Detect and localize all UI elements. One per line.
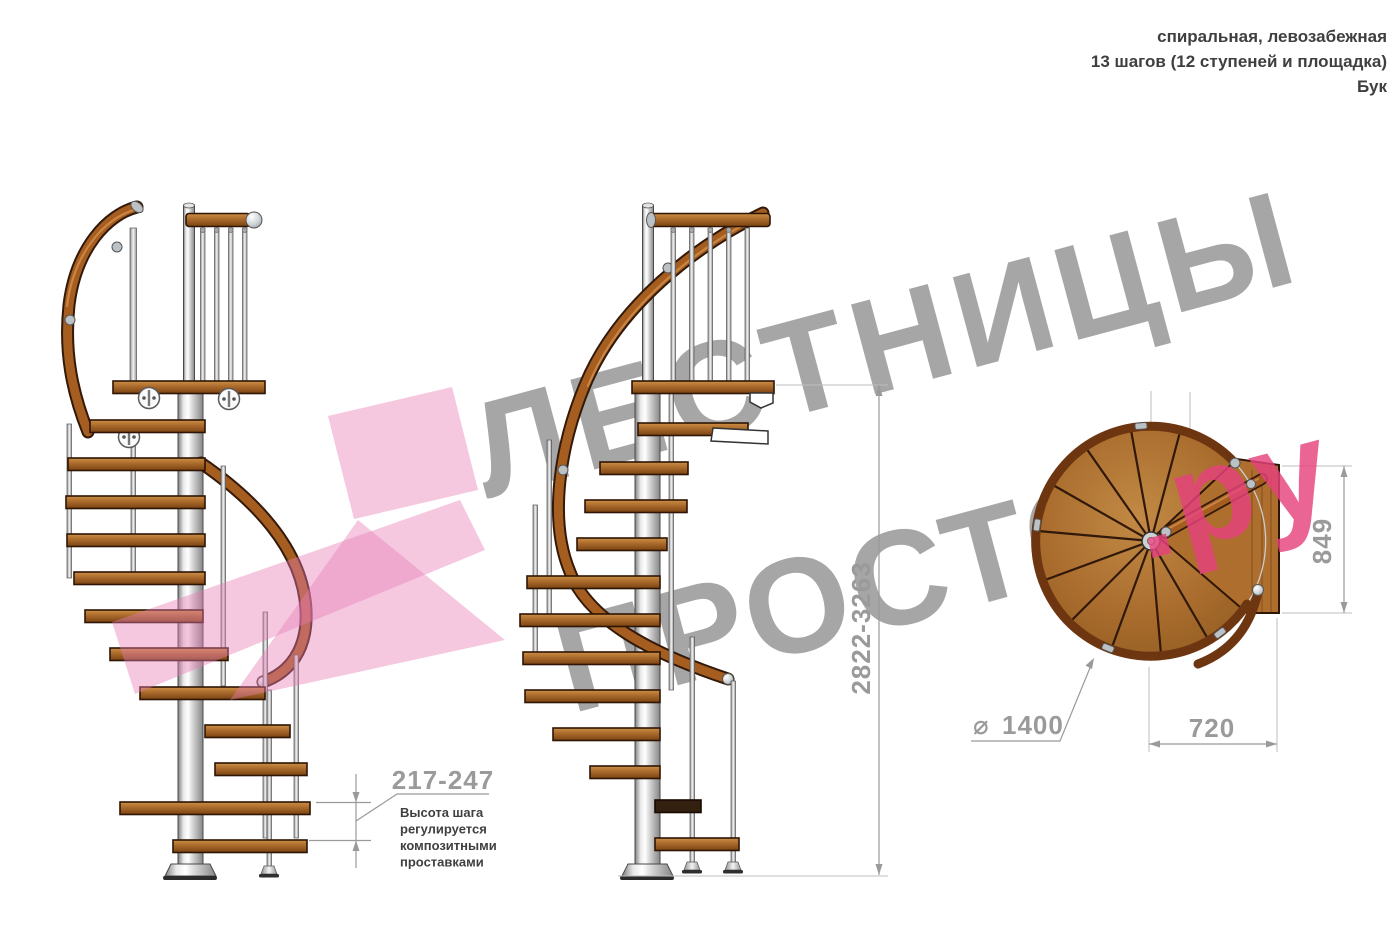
dim-arrow (1086, 658, 1095, 669)
dimension-step-height: 217-247 Высота шага регулируется компози… (309, 765, 497, 870)
step-height-value: 217-247 (392, 765, 494, 795)
dim-arrow (353, 841, 360, 852)
landing-bracket (750, 393, 773, 408)
dimension-total-height: 2822-3263 (776, 385, 888, 875)
platform-depth-value: 849 (1307, 518, 1337, 564)
title-block: спиральная, левозабежная 13 шагов (12 ст… (1091, 24, 1387, 99)
pole-top-left-view (184, 205, 195, 385)
rail-connector (65, 315, 75, 325)
rail-connector (558, 465, 568, 475)
diameter-symbol: ⌀ (973, 710, 990, 740)
landing-middle-view (632, 381, 774, 394)
dimension-diameter: ⌀ 1400 (971, 658, 1094, 741)
baluster-foot (682, 862, 702, 874)
guardrail-cap (647, 213, 656, 228)
pole-base-left-view (163, 864, 217, 880)
step-height-note-2: регулируется (400, 822, 487, 837)
side-view-left (65, 199, 310, 880)
dim-arrow (353, 792, 360, 803)
drawing-canvas: ЛЕСТНИЦЫ ПРОСТО.ру (0, 0, 1400, 929)
dimension-platform-depth: 849 (1282, 466, 1352, 613)
dim-arrow (1341, 466, 1348, 477)
tread-bracket (711, 428, 768, 444)
entry-rail-ball (1253, 585, 1264, 596)
top-guardrail-middle-view (650, 214, 770, 227)
title-material: Бук (1091, 74, 1387, 99)
dim-arrow (876, 385, 883, 396)
pole-left-view (178, 383, 203, 865)
total-height-value: 2822-3263 (846, 561, 876, 694)
title-type: спиральная, левозабежная (1091, 24, 1387, 49)
title-steps: 13 шагов (12 ступеней и площадка) (1091, 49, 1387, 74)
pole-base-middle-view (620, 864, 674, 880)
dim-arrow (876, 864, 883, 875)
plan-view (1033, 391, 1279, 664)
rim-end-cap (1230, 458, 1240, 468)
guardrail-ball-cap (246, 212, 262, 228)
baluster-foot (259, 866, 279, 878)
top-guardrail-left-view (186, 214, 250, 227)
side-view-middle (520, 203, 888, 880)
rail-connector (112, 242, 122, 252)
step-height-note-4: проставками (400, 855, 484, 870)
baluster-foot (723, 862, 743, 874)
diameter-value: 1400 (1002, 710, 1064, 740)
dim-arrow (1149, 741, 1160, 748)
staircase-drawing: 217-247 Высота шага регулируется компози… (0, 0, 1400, 929)
step-height-note-3: композитными (400, 838, 497, 853)
platform-width-value: 720 (1189, 713, 1235, 743)
landing-left-view (113, 381, 265, 394)
dim-arrow (1266, 741, 1277, 748)
step-height-note-1: Высота шага (400, 805, 484, 820)
dim-arrow (1341, 602, 1348, 613)
